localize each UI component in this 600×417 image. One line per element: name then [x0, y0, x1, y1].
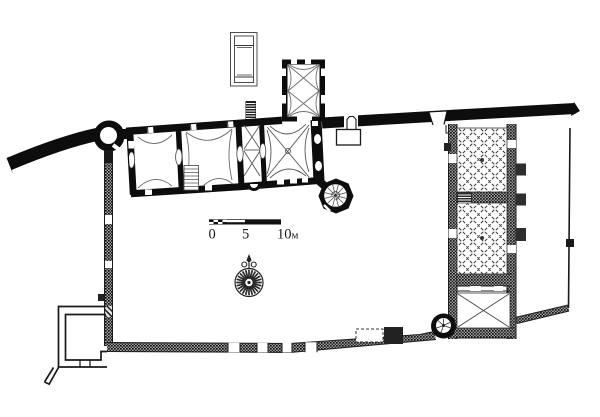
svg-text:5: 5 [242, 227, 249, 243]
svg-text:0: 0 [209, 227, 216, 243]
svg-text:10м: 10м [277, 227, 299, 243]
